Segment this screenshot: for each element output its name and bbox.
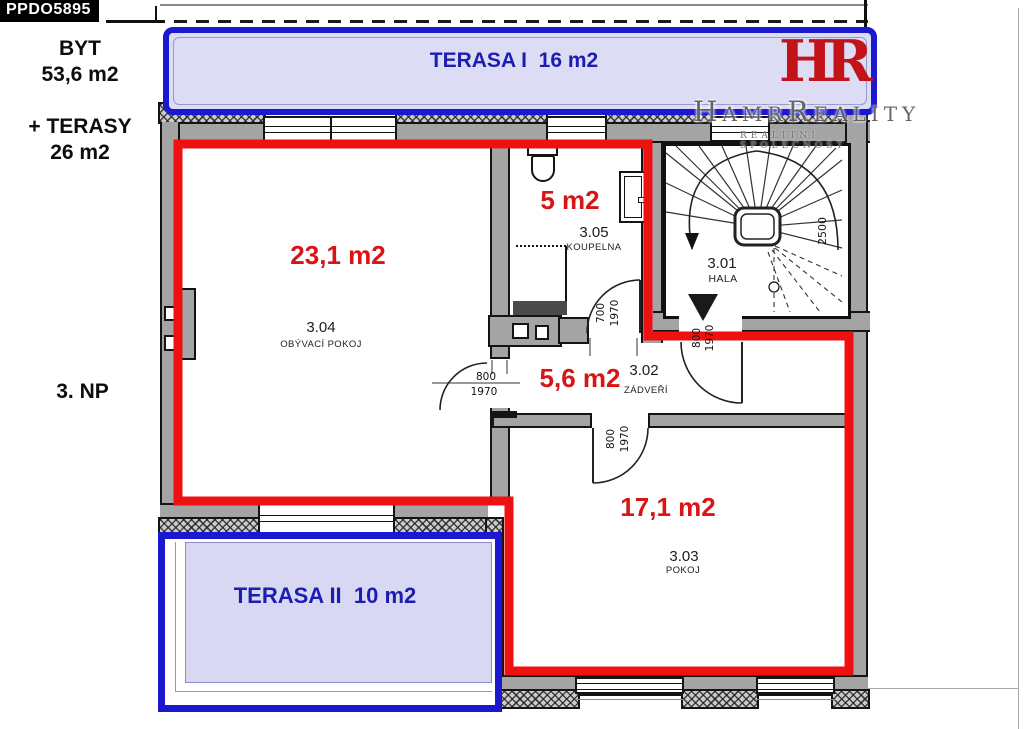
toilet-bowl (531, 155, 555, 182)
bathroom-bottom-wall (558, 317, 589, 344)
page-edge-vertical (1018, 8, 1019, 729)
window-pane (576, 683, 683, 690)
terrace-2-step-line-v (175, 542, 176, 691)
living-room-area: 23,1 m2 (238, 240, 438, 271)
window-bathroom-top (546, 116, 607, 142)
shaft-opening-1 (512, 323, 529, 339)
dim-lr-door-width: 800 (476, 371, 496, 383)
chimney (179, 288, 196, 360)
window-pane (259, 515, 394, 522)
terrace-2 (158, 532, 502, 712)
roof-line (160, 4, 868, 6)
hall-number: 3.01 (672, 255, 772, 272)
flat-label: BYT (5, 36, 155, 62)
bottom-wall-insulation-3 (831, 689, 870, 709)
room-area: 17,1 m2 (568, 492, 768, 523)
hall-room (663, 143, 851, 319)
flat-area: 53,6 m2 (5, 62, 155, 88)
window-living-room-top (263, 116, 397, 142)
terraces-area: 26 m2 (0, 140, 160, 166)
vestibule-number: 3.02 (594, 362, 694, 379)
shaft-opening-2 (535, 325, 549, 340)
terraces-label: + TERASY (0, 114, 160, 140)
dim-bath-door-width: 700 (595, 303, 607, 323)
terrace-2-step-line-h (175, 691, 492, 692)
bottom-wall-insulation-2 (681, 689, 759, 709)
dim-bath-door-height: 1970 (609, 300, 621, 327)
window-pane (757, 683, 834, 690)
dim-room-door-height: 1970 (619, 426, 631, 453)
boiler-valve (638, 197, 649, 203)
vestibule-bottom-wall-east (648, 413, 848, 428)
listing-id-badge: PPDO5895 (0, 0, 99, 22)
bathroom-door-arc (587, 280, 640, 333)
entry-door-opening (679, 308, 742, 335)
room-number: 3.03 (634, 548, 734, 565)
watermark-company-name: HamrReality (693, 95, 943, 128)
right-boundary-tick (864, 0, 867, 30)
hr-logo: HR (779, 30, 863, 96)
living-room-door-arc (440, 363, 487, 410)
room-name: POKOJ (633, 565, 733, 576)
bathroom-area: 5 m2 (520, 185, 620, 216)
floor-label: 3. NP (30, 379, 135, 405)
left-boundary-tick (155, 6, 157, 22)
bathroom-name: KOUPELNA (544, 242, 644, 253)
window-pane (547, 126, 606, 133)
dim-room-door-width: 800 (605, 429, 617, 449)
chimney-flue-2 (164, 335, 180, 351)
window-room-bottom-2 (756, 677, 835, 694)
living-room-number: 3.04 (271, 319, 371, 336)
page-edge-horizontal (866, 688, 1019, 689)
chimney-flue-1 (164, 306, 180, 321)
wall-corner-cap (492, 411, 517, 418)
hall-name: HALA (673, 273, 773, 285)
window-mullion (330, 117, 332, 141)
bathroom-left-wall (490, 143, 510, 317)
window-room-bottom-1 (575, 677, 684, 694)
dim-lr-door-height: 1970 (471, 386, 498, 398)
window-sill-2 (756, 699, 835, 700)
floor-plan: TERASA I 16 m2 HR TERASA II 10 m2 (0, 0, 1024, 729)
bathroom-number: 3.05 (544, 224, 644, 241)
terrace-2-label: TERASA II 10 m2 (170, 583, 480, 609)
dashed-boundary-line (130, 20, 868, 23)
watermark-company-subtitle: REALITNÍ SPOLEČNOST (740, 131, 910, 151)
terraces-size-label: + TERASY 26 m2 (0, 114, 160, 166)
window-terrace-2 (258, 502, 395, 534)
room-door-arc (593, 428, 648, 483)
terrace-1-label: TERASA I 16 m2 (163, 49, 865, 73)
bathtub-front (513, 301, 567, 315)
window-sill-1 (575, 699, 684, 700)
bathtub-edge (565, 246, 567, 304)
terrace-2-floor (185, 542, 492, 683)
flat-size-label: BYT 53,6 m2 (5, 36, 155, 88)
vestibule-left-wall-upper (490, 345, 510, 359)
vestibule-name: ZÁDVEŘÍ (596, 385, 696, 396)
living-room-name: OBÝVACÍ POKOJ (251, 339, 391, 350)
